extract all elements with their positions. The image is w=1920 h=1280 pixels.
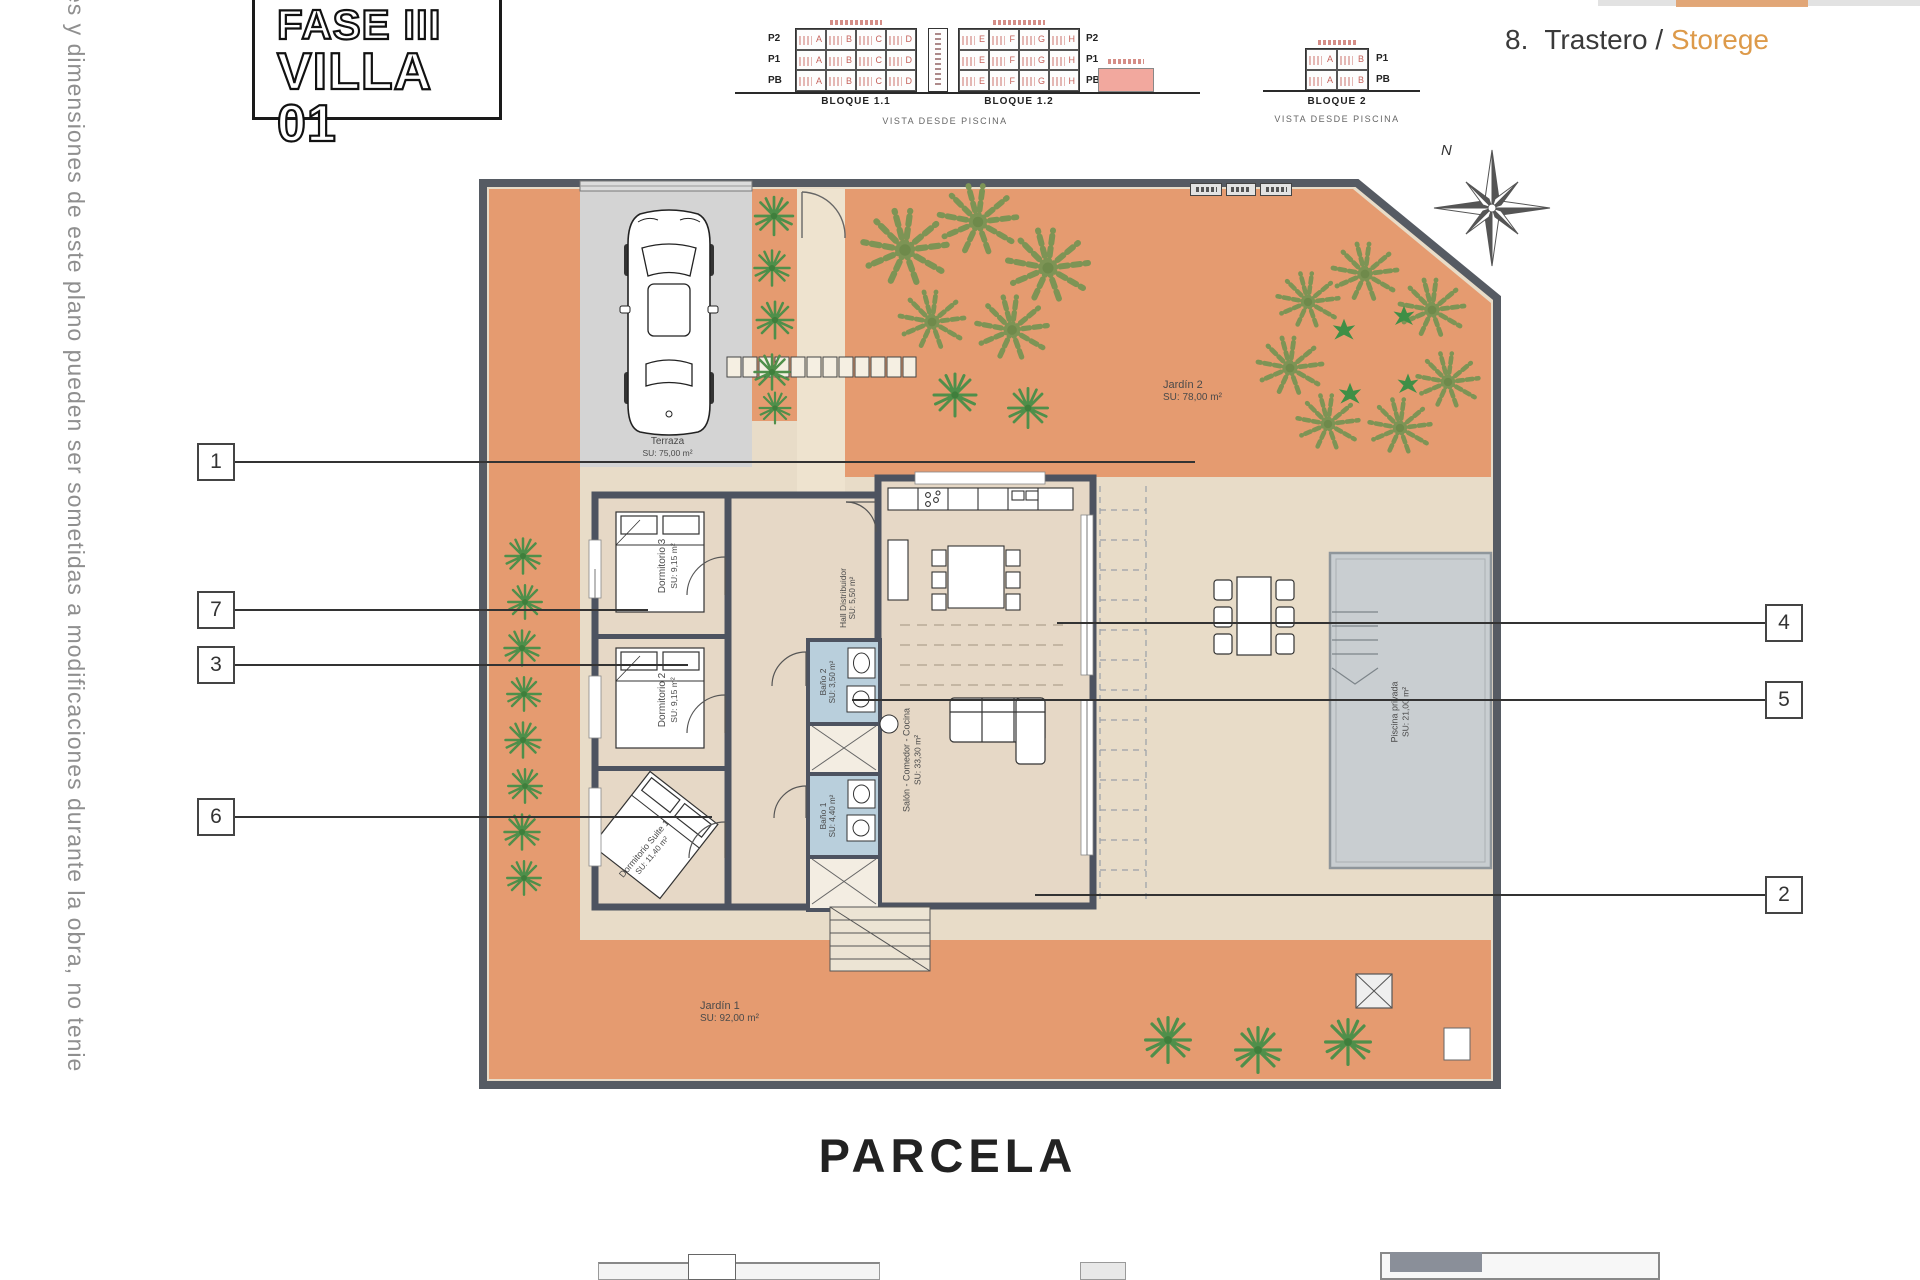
garden-strip-left bbox=[489, 189, 580, 1079]
plan-sheet: es y dimensiones de este plano pueden se… bbox=[0, 0, 1920, 1280]
utility-tag bbox=[1226, 183, 1256, 196]
callout-line-3 bbox=[235, 664, 688, 666]
callout-7: 7 bbox=[197, 591, 235, 629]
callout-6: 6 bbox=[197, 798, 235, 836]
utility-tag bbox=[1260, 183, 1292, 196]
terraza-label: Terraza SU: 75,00 m² bbox=[620, 436, 715, 458]
living-block bbox=[878, 478, 1093, 906]
car bbox=[620, 210, 718, 435]
exterior-steps bbox=[830, 907, 930, 971]
garden-box bbox=[1444, 1028, 1470, 1060]
callout-line-6 bbox=[235, 816, 712, 818]
callout-5: 5 bbox=[1765, 681, 1803, 719]
column-stamp bbox=[880, 715, 898, 733]
piscina-label: Piscina privada SU: 21,00 m² bbox=[1390, 681, 1411, 742]
callout-line-2 bbox=[1035, 894, 1765, 896]
callout-4: 4 bbox=[1765, 604, 1803, 642]
outdoor-shower bbox=[1356, 974, 1392, 1008]
floor-plan-drawing bbox=[0, 0, 1920, 1280]
dining-table bbox=[932, 546, 1020, 610]
callout-line-7 bbox=[235, 609, 648, 611]
callout-2: 2 bbox=[1765, 876, 1803, 914]
dorm3-label: Dormitorio 3 SU: 9,15 m² bbox=[657, 539, 679, 593]
dorm2-label: Dormitorio 2 SU: 9,15 m² bbox=[657, 673, 679, 727]
entry-walkway bbox=[797, 189, 845, 492]
callout-line-1 bbox=[235, 461, 1195, 463]
pergola-planter-row bbox=[727, 357, 916, 377]
callout-1: 1 bbox=[197, 443, 235, 481]
compass-rose bbox=[1434, 150, 1550, 266]
pool bbox=[1330, 553, 1491, 868]
salon-label: Salón - Comedor - Cocina SU: 33,30 m² bbox=[902, 708, 923, 812]
utility-tag bbox=[1190, 183, 1222, 196]
hall-label: Hall Distribuidor SU: 5,50 m² bbox=[838, 568, 858, 628]
jardin1-label: Jardín 1 SU: 92,00 m² bbox=[700, 1000, 759, 1025]
jardin-2-area bbox=[845, 189, 1491, 477]
callout-line-4 bbox=[1057, 622, 1765, 624]
outdoor-dining-set bbox=[1214, 577, 1294, 655]
jardin2-label: Jardín 2 SU: 78,00 m² bbox=[1163, 379, 1222, 404]
callout-3: 3 bbox=[197, 646, 235, 684]
bano1-label: Baño 1 SU: 4,40 m² bbox=[818, 795, 838, 838]
bano2-label: Baño 2 SU: 3,50 m² bbox=[818, 661, 838, 704]
callout-line-5 bbox=[852, 699, 1765, 701]
